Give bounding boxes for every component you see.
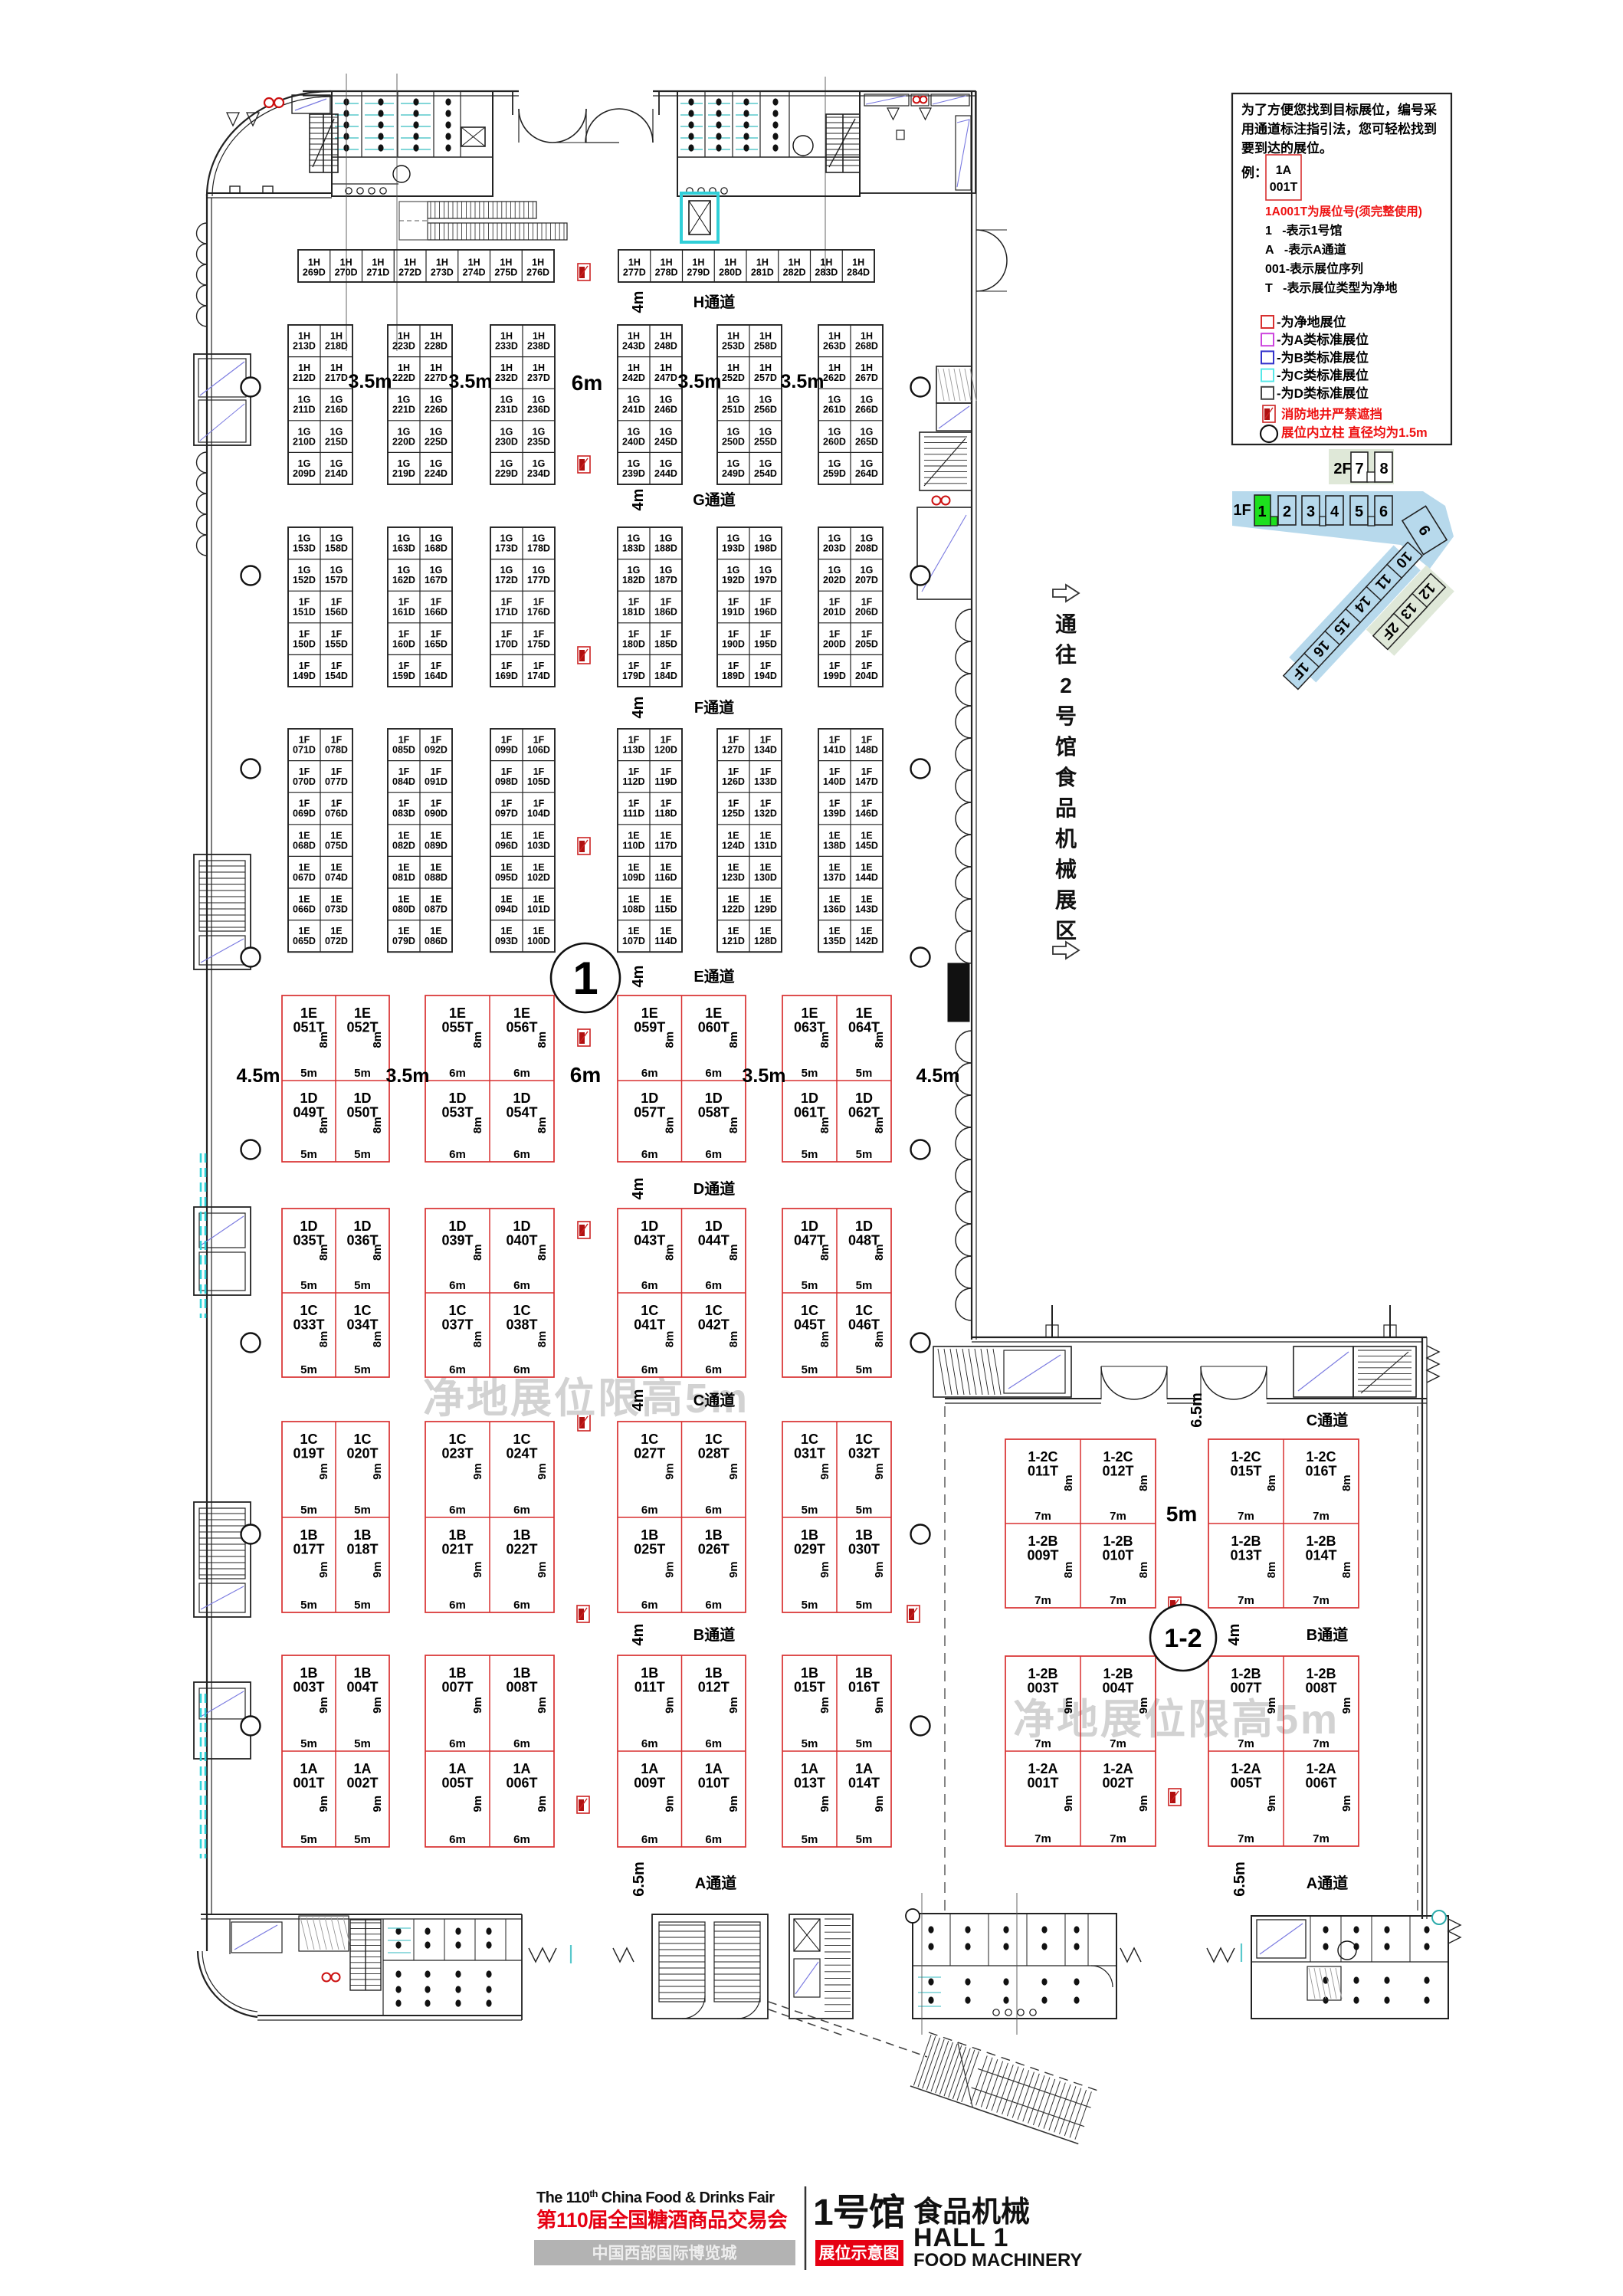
svg-text:4m: 4m — [630, 966, 647, 988]
svg-text:往: 往 — [1055, 642, 1077, 667]
svg-text:-为净地展位: -为净地展位 — [1277, 314, 1346, 330]
svg-text:8m: 8m — [1062, 1562, 1075, 1579]
svg-text:8m: 8m — [371, 1117, 384, 1133]
svg-text:食: 食 — [1055, 765, 1077, 789]
svg-text:5m: 5m — [354, 1363, 371, 1376]
svg-text:9m: 9m — [664, 1697, 677, 1714]
svg-text:9m: 9m — [1340, 1795, 1353, 1812]
svg-text:FOOD MACHINERY: FOOD MACHINERY — [913, 2250, 1082, 2271]
svg-text:9m: 9m — [818, 1561, 831, 1578]
svg-text:6m: 6m — [449, 1148, 466, 1161]
svg-text:9m: 9m — [1137, 1697, 1150, 1714]
svg-text:6m: 6m — [705, 1148, 722, 1161]
svg-text:8m: 8m — [317, 1032, 330, 1048]
svg-text:2: 2 — [1283, 503, 1291, 520]
svg-text:The 110th China Food & Drinks: The 110th China Food & Drinks Fair — [536, 2189, 775, 2206]
svg-text:号: 号 — [1055, 704, 1077, 728]
svg-text:6m: 6m — [513, 1737, 530, 1750]
svg-text:7m: 7m — [1238, 1737, 1254, 1750]
svg-text:5m: 5m — [354, 1279, 371, 1292]
svg-text:6m: 6m — [449, 1504, 466, 1517]
svg-text:9m: 9m — [1062, 1795, 1075, 1812]
svg-text:5m: 5m — [856, 1504, 873, 1517]
svg-text:6m: 6m — [705, 1279, 722, 1292]
svg-text:8m: 8m — [664, 1244, 677, 1261]
svg-text:8m: 8m — [818, 1331, 831, 1348]
svg-text:5m: 5m — [856, 1148, 873, 1161]
svg-text:8m: 8m — [664, 1117, 677, 1133]
svg-text:-为B类标准展位: -为B类标准展位 — [1277, 349, 1369, 365]
svg-text:1-2B003T: 1-2B003T — [1027, 1666, 1058, 1696]
svg-text:8m: 8m — [317, 1117, 330, 1133]
svg-text:6m: 6m — [513, 1833, 530, 1846]
svg-text:6m: 6m — [513, 1504, 530, 1517]
svg-text:7m: 7m — [1034, 1832, 1051, 1845]
svg-text:馆: 馆 — [1055, 734, 1077, 759]
svg-text:9m: 9m — [873, 1463, 886, 1480]
svg-text:8m: 8m — [471, 1032, 484, 1048]
svg-text:5m: 5m — [300, 1148, 317, 1161]
svg-text:5m: 5m — [300, 1599, 317, 1612]
svg-text:6m: 6m — [641, 1833, 658, 1846]
svg-text:1-2C016T: 1-2C016T — [1305, 1449, 1336, 1479]
svg-text:8m: 8m — [1340, 1474, 1353, 1491]
svg-text:5m: 5m — [802, 1148, 818, 1161]
svg-text:6m: 6m — [641, 1737, 658, 1750]
svg-text:7m: 7m — [1313, 1832, 1330, 1845]
svg-text:4.5m: 4.5m — [237, 1065, 280, 1087]
svg-text:4m: 4m — [630, 291, 647, 313]
svg-text:9m: 9m — [471, 1463, 484, 1480]
svg-text:9m: 9m — [1340, 1697, 1353, 1714]
svg-text:7m: 7m — [1238, 1832, 1254, 1845]
svg-text:用通道标注指引法，您可轻松找到: 用通道标注指引法，您可轻松找到 — [1241, 121, 1437, 136]
svg-text:5m: 5m — [802, 1067, 818, 1080]
svg-text:4m: 4m — [630, 1178, 647, 1200]
svg-text:9m: 9m — [536, 1796, 549, 1812]
svg-text:8m: 8m — [873, 1032, 886, 1048]
svg-text:1-2B014T: 1-2B014T — [1305, 1533, 1336, 1563]
svg-text:区: 区 — [1055, 919, 1077, 943]
svg-text:4m: 4m — [630, 1624, 647, 1646]
svg-text:1-2B013T: 1-2B013T — [1230, 1533, 1261, 1563]
svg-text:9m: 9m — [317, 1561, 330, 1578]
svg-text:6m: 6m — [641, 1279, 658, 1292]
svg-text:6m: 6m — [705, 1067, 722, 1080]
svg-text:7m: 7m — [1110, 1594, 1126, 1607]
svg-text:8m: 8m — [471, 1244, 484, 1261]
svg-text:1-2C015T: 1-2C015T — [1230, 1449, 1261, 1479]
svg-text:1-2A001T: 1-2A001T — [1027, 1761, 1058, 1791]
svg-text:为了方便您找到目标展位，编号采: 为了方便您找到目标展位，编号采 — [1241, 102, 1437, 117]
svg-text:9m: 9m — [1265, 1697, 1278, 1714]
svg-text:6m: 6m — [513, 1067, 530, 1080]
svg-text:4: 4 — [1330, 503, 1339, 520]
svg-text:8m: 8m — [536, 1244, 549, 1261]
svg-text:-为C类标准展位: -为C类标准展位 — [1277, 368, 1369, 383]
svg-text:6m: 6m — [705, 1737, 722, 1750]
svg-text:HALL 1: HALL 1 — [913, 2223, 1008, 2252]
svg-text:1A001T为展位号(须完整使用): 1A001T为展位号(须完整使用) — [1265, 204, 1422, 218]
svg-text:1-2B004T: 1-2B004T — [1102, 1666, 1133, 1696]
svg-text:3.5m: 3.5m — [781, 371, 825, 392]
svg-text:6m: 6m — [513, 1279, 530, 1292]
svg-text:9m: 9m — [371, 1697, 384, 1714]
svg-text:7m: 7m — [1034, 1510, 1051, 1523]
svg-text:8m: 8m — [818, 1117, 831, 1133]
svg-text:9m: 9m — [664, 1796, 677, 1812]
svg-text:1号馆: 1号馆 — [813, 2193, 905, 2233]
svg-text:6m: 6m — [449, 1599, 466, 1612]
svg-text:C通道: C通道 — [693, 1391, 735, 1409]
svg-text:8: 8 — [1379, 461, 1388, 477]
svg-text:品: 品 — [1055, 796, 1077, 820]
svg-text:A -表示A通道: A -表示A通道 — [1265, 242, 1346, 257]
svg-text:6m: 6m — [513, 1599, 530, 1612]
svg-text:消防地井严禁遮挡: 消防地井严禁遮挡 — [1281, 406, 1382, 421]
svg-text:9m: 9m — [371, 1561, 384, 1578]
svg-text:8m: 8m — [536, 1032, 549, 1048]
svg-text:9m: 9m — [536, 1697, 549, 1714]
svg-text:6: 6 — [1379, 503, 1388, 520]
svg-text:6m: 6m — [641, 1148, 658, 1161]
svg-text:1: 1 — [572, 953, 598, 1004]
svg-text:9m: 9m — [727, 1796, 740, 1812]
svg-text:9m: 9m — [371, 1796, 384, 1812]
svg-text:5m: 5m — [300, 1363, 317, 1376]
svg-text:2: 2 — [1060, 674, 1072, 697]
svg-text:5m: 5m — [300, 1833, 317, 1846]
svg-text:8m: 8m — [1265, 1562, 1278, 1579]
svg-text:6m: 6m — [705, 1833, 722, 1846]
svg-text:6m: 6m — [641, 1363, 658, 1376]
svg-text:5m: 5m — [856, 1279, 873, 1292]
svg-text:8m: 8m — [873, 1117, 886, 1133]
svg-text:-为A类标准展位: -为A类标准展位 — [1277, 332, 1369, 347]
svg-text:8m: 8m — [727, 1244, 740, 1261]
svg-text:6.5m: 6.5m — [1231, 1861, 1248, 1897]
svg-text:5m: 5m — [856, 1599, 873, 1612]
svg-text:展: 展 — [1055, 888, 1077, 912]
svg-text:8m: 8m — [1137, 1562, 1150, 1579]
svg-text:1F: 1F — [1233, 502, 1251, 519]
svg-text:3.5m: 3.5m — [349, 371, 392, 392]
svg-text:9m: 9m — [664, 1463, 677, 1480]
svg-text:3.5m: 3.5m — [743, 1065, 786, 1087]
svg-text:4m: 4m — [630, 489, 647, 511]
svg-text:9m: 9m — [1265, 1795, 1278, 1812]
svg-text:8m: 8m — [818, 1032, 831, 1048]
svg-text:9m: 9m — [1062, 1697, 1075, 1714]
svg-text:8m: 8m — [471, 1331, 484, 1348]
svg-text:1A: 1A — [1276, 164, 1292, 177]
svg-text:7m: 7m — [1238, 1594, 1254, 1607]
svg-text:5m: 5m — [802, 1363, 818, 1376]
svg-text:9m: 9m — [536, 1463, 549, 1480]
svg-text:5: 5 — [1355, 503, 1363, 520]
svg-text:3.5m: 3.5m — [386, 1065, 430, 1087]
svg-text:4m: 4m — [630, 1389, 647, 1412]
svg-text:6m: 6m — [449, 1833, 466, 1846]
svg-text:4m: 4m — [630, 697, 647, 719]
svg-text:6m: 6m — [449, 1363, 466, 1376]
svg-text:7m: 7m — [1110, 1737, 1126, 1750]
svg-text:9m: 9m — [818, 1697, 831, 1714]
svg-text:E通道: E通道 — [693, 967, 734, 986]
svg-text:6.5m: 6.5m — [631, 1861, 648, 1897]
svg-text:7m: 7m — [1238, 1510, 1254, 1523]
svg-text:5m: 5m — [856, 1833, 873, 1846]
svg-text:B通道: B通道 — [1307, 1625, 1348, 1644]
svg-text:001T: 001T — [1270, 181, 1298, 194]
svg-text:中国西部国际博览城: 中国西部国际博览城 — [592, 2244, 737, 2262]
svg-text:展位示意图: 展位示意图 — [819, 2244, 900, 2262]
svg-text:1-2B009T: 1-2B009T — [1027, 1533, 1058, 1563]
svg-text:6.5m: 6.5m — [1189, 1392, 1205, 1428]
svg-text:6m: 6m — [705, 1363, 722, 1376]
svg-text:8m: 8m — [873, 1331, 886, 1348]
svg-text:B通道: B通道 — [693, 1625, 735, 1644]
svg-text:5m: 5m — [300, 1279, 317, 1292]
svg-text:1-2C011T: 1-2C011T — [1028, 1449, 1058, 1479]
svg-text:8m: 8m — [727, 1331, 740, 1348]
svg-text:6m: 6m — [513, 1148, 530, 1161]
svg-text:1-2: 1-2 — [1164, 1624, 1202, 1653]
svg-text:5m: 5m — [856, 1363, 873, 1376]
svg-text:9m: 9m — [536, 1561, 549, 1578]
svg-text:T -表示展位类型为净地: T -表示展位类型为净地 — [1265, 280, 1397, 295]
svg-text:5m: 5m — [1166, 1502, 1197, 1526]
svg-text:8m: 8m — [1340, 1562, 1353, 1579]
svg-text:9m: 9m — [1137, 1795, 1150, 1812]
svg-text:4m: 4m — [1226, 1624, 1243, 1646]
svg-text:9m: 9m — [873, 1561, 886, 1578]
svg-text:8m: 8m — [536, 1331, 549, 1348]
svg-text:G通道: G通道 — [693, 490, 736, 509]
svg-text:5m: 5m — [856, 1737, 873, 1750]
svg-text:9m: 9m — [727, 1697, 740, 1714]
svg-text:5m: 5m — [300, 1737, 317, 1750]
svg-text:8m: 8m — [1265, 1474, 1278, 1491]
svg-text:7: 7 — [1355, 461, 1363, 477]
svg-text:3.5m: 3.5m — [449, 371, 493, 392]
svg-text:例：: 例： — [1241, 165, 1267, 180]
svg-text:4.5m: 4.5m — [916, 1065, 960, 1087]
svg-text:要到达的展位。: 要到达的展位。 — [1241, 140, 1333, 156]
svg-text:8m: 8m — [536, 1117, 549, 1133]
svg-text:1-2B010T: 1-2B010T — [1102, 1533, 1133, 1563]
svg-text:C通道: C通道 — [1307, 1411, 1348, 1429]
svg-text:8m: 8m — [818, 1244, 831, 1261]
svg-text:A通道: A通道 — [1307, 1874, 1348, 1892]
svg-text:7m: 7m — [1313, 1594, 1330, 1607]
svg-text:9m: 9m — [371, 1463, 384, 1480]
svg-text:5m: 5m — [802, 1737, 818, 1750]
svg-text:5m: 5m — [354, 1833, 371, 1846]
svg-text:1-2B007T: 1-2B007T — [1230, 1666, 1261, 1696]
svg-text:001-表示展位序列: 001-表示展位序列 — [1265, 261, 1363, 276]
svg-text:9m: 9m — [471, 1561, 484, 1578]
svg-text:5m: 5m — [354, 1148, 371, 1161]
svg-text:械: 械 — [1055, 858, 1077, 881]
svg-text:5m: 5m — [354, 1504, 371, 1517]
svg-text:9m: 9m — [471, 1796, 484, 1812]
svg-text:9m: 9m — [664, 1561, 677, 1578]
svg-text:5m: 5m — [300, 1504, 317, 1517]
svg-text:6m: 6m — [641, 1504, 658, 1517]
svg-text:7m: 7m — [1110, 1832, 1126, 1845]
svg-text:8m: 8m — [664, 1331, 677, 1348]
svg-text:7m: 7m — [1313, 1510, 1330, 1523]
svg-text:D通道: D通道 — [693, 1179, 735, 1198]
svg-text:8m: 8m — [1137, 1474, 1150, 1491]
svg-text:6m: 6m — [449, 1067, 466, 1080]
svg-text:1-2B008T: 1-2B008T — [1305, 1666, 1336, 1696]
svg-text:A通道: A通道 — [695, 1874, 736, 1892]
svg-text:6m: 6m — [449, 1279, 466, 1292]
svg-text:-为D类标准展位: -为D类标准展位 — [1277, 385, 1369, 401]
svg-text:9m: 9m — [873, 1697, 886, 1714]
svg-text:H通道: H通道 — [693, 293, 735, 311]
svg-text:9m: 9m — [317, 1463, 330, 1480]
svg-text:5m: 5m — [354, 1067, 371, 1080]
svg-text:7m: 7m — [1034, 1737, 1051, 1750]
svg-text:9m: 9m — [727, 1463, 740, 1480]
svg-text:6m: 6m — [570, 1063, 601, 1087]
svg-text:8m: 8m — [371, 1244, 384, 1261]
svg-text:3: 3 — [1307, 503, 1315, 520]
svg-text:8m: 8m — [317, 1244, 330, 1261]
svg-text:5m: 5m — [856, 1067, 873, 1080]
svg-text:F通道: F通道 — [694, 698, 734, 717]
svg-text:9m: 9m — [317, 1796, 330, 1812]
svg-text:第110届全国糖酒商品交易会: 第110届全国糖酒商品交易会 — [536, 2209, 788, 2232]
svg-text:6m: 6m — [513, 1363, 530, 1376]
svg-text:展位内立柱 直径均为1.5m: 展位内立柱 直径均为1.5m — [1281, 425, 1428, 440]
svg-text:8m: 8m — [471, 1117, 484, 1133]
svg-text:5m: 5m — [802, 1833, 818, 1846]
svg-text:1: 1 — [1257, 503, 1266, 520]
svg-text:机: 机 — [1055, 827, 1077, 851]
svg-text:1 -表示1号馆: 1 -表示1号馆 — [1265, 223, 1342, 238]
svg-text:3.5m: 3.5m — [678, 371, 722, 392]
svg-text:6m: 6m — [705, 1504, 722, 1517]
svg-text:8m: 8m — [1062, 1474, 1075, 1491]
svg-text:8m: 8m — [664, 1032, 677, 1048]
svg-text:8m: 8m — [371, 1032, 384, 1048]
svg-text:5m: 5m — [354, 1737, 371, 1750]
svg-text:1-2C012T: 1-2C012T — [1102, 1449, 1133, 1479]
svg-text:9m: 9m — [471, 1697, 484, 1714]
svg-text:9m: 9m — [818, 1796, 831, 1812]
svg-text:5m: 5m — [300, 1067, 317, 1080]
svg-text:9m: 9m — [818, 1463, 831, 1480]
svg-text:1-2A005T: 1-2A005T — [1230, 1761, 1261, 1791]
svg-text:8m: 8m — [317, 1331, 330, 1348]
svg-text:1-2A006T: 1-2A006T — [1305, 1761, 1336, 1791]
svg-text:6m: 6m — [572, 371, 602, 395]
svg-text:8m: 8m — [727, 1117, 740, 1133]
svg-text:8m: 8m — [727, 1032, 740, 1048]
svg-text:7m: 7m — [1034, 1594, 1051, 1607]
svg-text:通: 通 — [1055, 612, 1077, 636]
svg-text:8m: 8m — [371, 1331, 384, 1348]
svg-text:7m: 7m — [1110, 1510, 1126, 1523]
svg-text:9m: 9m — [317, 1697, 330, 1714]
svg-text:7m: 7m — [1313, 1737, 1330, 1750]
svg-text:5m: 5m — [802, 1599, 818, 1612]
svg-text:1-2A002T: 1-2A002T — [1102, 1761, 1133, 1791]
svg-text:9m: 9m — [727, 1561, 740, 1578]
svg-text:2F: 2F — [1333, 461, 1351, 477]
svg-text:5m: 5m — [802, 1504, 818, 1517]
svg-text:6m: 6m — [641, 1599, 658, 1612]
svg-text:6m: 6m — [449, 1737, 466, 1750]
svg-text:8m: 8m — [873, 1244, 886, 1261]
svg-text:5m: 5m — [354, 1599, 371, 1612]
svg-text:9m: 9m — [873, 1796, 886, 1812]
svg-text:6m: 6m — [641, 1067, 658, 1080]
svg-text:6m: 6m — [705, 1599, 722, 1612]
svg-text:5m: 5m — [802, 1279, 818, 1292]
